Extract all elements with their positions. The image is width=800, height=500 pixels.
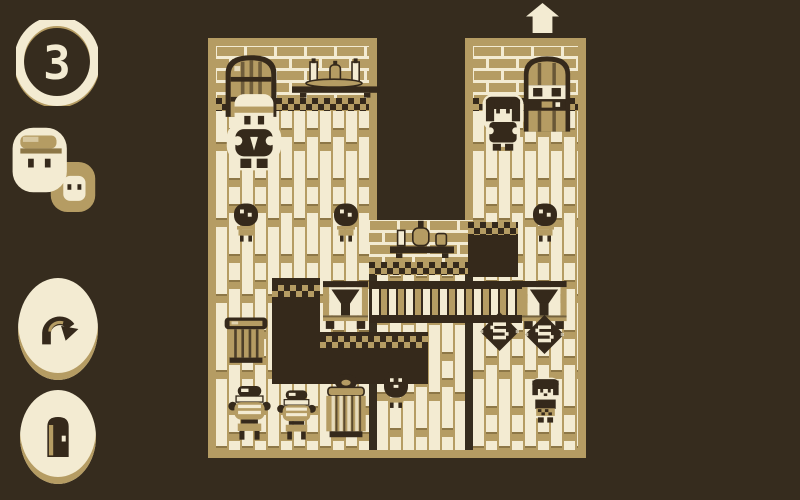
open-basket bbox=[223, 317, 269, 364]
shelf-with-bottles bbox=[286, 56, 386, 98]
moves-counter: 3 bbox=[16, 20, 98, 106]
lidded-pot bbox=[275, 387, 318, 446]
dark-table-trim bbox=[468, 222, 518, 235]
railing-top bbox=[370, 281, 522, 289]
game-board bbox=[0, 0, 800, 500]
jar-on-stand bbox=[231, 202, 261, 244]
board-border-gap-right bbox=[465, 38, 473, 220]
dark-jar bbox=[381, 369, 411, 410]
character-man-with-cap[interactable] bbox=[219, 94, 289, 172]
counter-trim bbox=[272, 285, 320, 297]
s-token bbox=[480, 311, 519, 352]
s-token bbox=[525, 314, 564, 355]
cupboard-door bbox=[520, 54, 574, 132]
jar-on-stand bbox=[331, 202, 361, 244]
board-border-top-right bbox=[465, 38, 586, 46]
jar-on-stand bbox=[530, 202, 560, 244]
character-girl[interactable] bbox=[528, 375, 563, 427]
hopper-press bbox=[323, 281, 368, 329]
board-border-left bbox=[208, 38, 216, 458]
lidded-pot bbox=[226, 383, 273, 446]
dark-table bbox=[468, 222, 518, 277]
board-border-right bbox=[578, 38, 586, 458]
counter-vertical bbox=[272, 278, 320, 384]
shelf-with-bottles-middle bbox=[376, 220, 468, 260]
game-screen: 3 bbox=[0, 0, 800, 500]
board-border-bottom bbox=[208, 450, 586, 458]
board-border-top-left bbox=[208, 38, 377, 46]
wall-base-middle bbox=[369, 262, 473, 275]
counter-trim bbox=[320, 336, 428, 348]
character-woman[interactable] bbox=[479, 94, 527, 152]
lidded-basket bbox=[323, 366, 369, 448]
man-with-cap-portrait-icon bbox=[10, 124, 72, 196]
